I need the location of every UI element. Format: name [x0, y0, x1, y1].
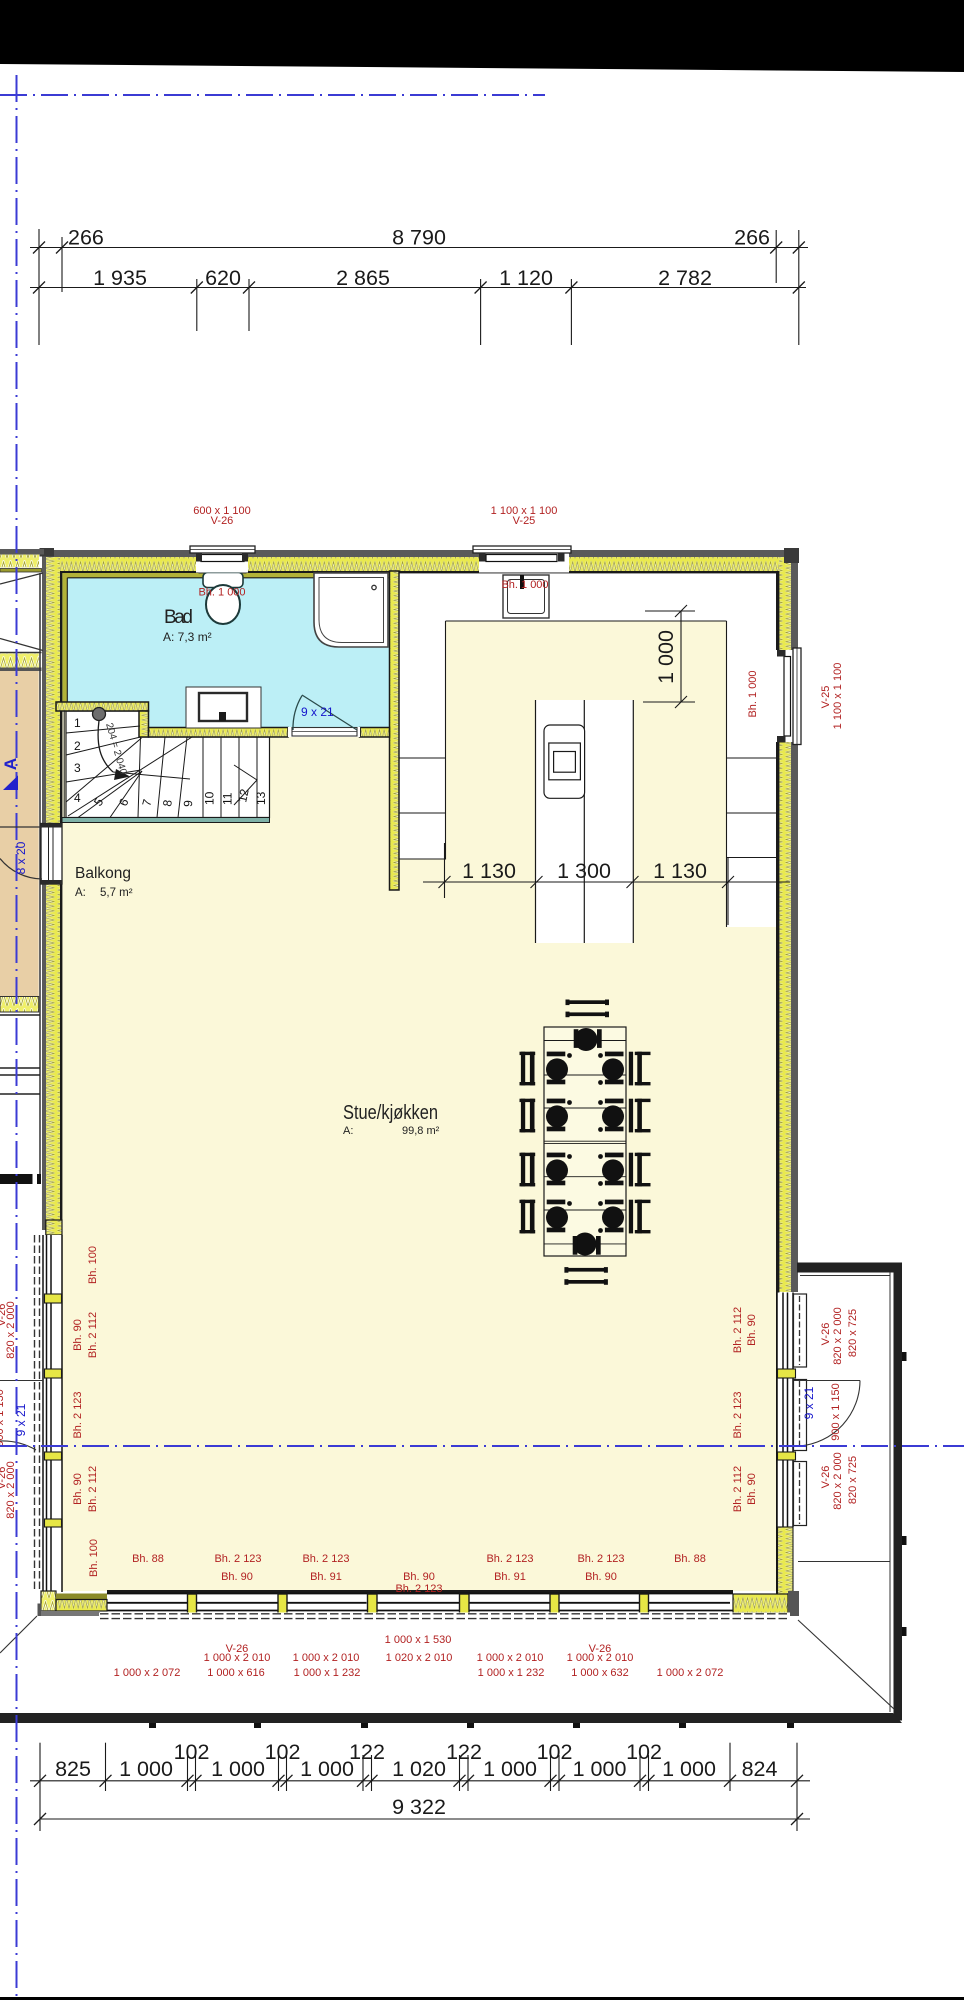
svg-text:V-25: V-25 [513, 515, 536, 527]
svg-text:820 x 725: 820 x 725 [847, 1309, 859, 1357]
svg-text:820 x 2 000: 820 x 2 000 [832, 1307, 844, 1365]
svg-text:1 130: 1 130 [462, 859, 516, 883]
svg-text:9: 9 [181, 800, 195, 807]
svg-text:900 x 1 150: 900 x 1 150 [830, 1383, 842, 1441]
svg-text:9 x 21: 9 x 21 [14, 1403, 28, 1436]
svg-text:1 020: 1 020 [392, 1757, 446, 1781]
svg-text:620: 620 [205, 266, 241, 290]
svg-text:Bh. 88: Bh. 88 [132, 1553, 164, 1565]
svg-text:Bh. 90: Bh. 90 [585, 1571, 617, 1583]
svg-text:102: 102 [265, 1740, 301, 1764]
svg-text:1 000 x 2 010: 1 000 x 2 010 [477, 1652, 544, 1664]
svg-text:11: 11 [221, 792, 235, 805]
svg-text:Bh. 2 123: Bh. 2 123 [72, 1391, 84, 1438]
svg-text:1 000: 1 000 [654, 630, 678, 684]
svg-text:1 000 x 2 010: 1 000 x 2 010 [204, 1652, 271, 1664]
svg-text:Balkong: Balkong [75, 865, 131, 882]
svg-text:266: 266 [734, 226, 770, 250]
svg-text:8 x 20: 8 x 20 [14, 841, 28, 874]
svg-text:1 020 x 2 010: 1 020 x 2 010 [386, 1652, 453, 1664]
svg-text:5,7 m²: 5,7 m² [100, 887, 133, 899]
svg-text:1 000: 1 000 [483, 1757, 537, 1781]
svg-text:824: 824 [742, 1757, 778, 1781]
svg-text:4: 4 [74, 791, 81, 805]
svg-text:102: 102 [537, 1740, 573, 1764]
svg-text:1 000 x 2 010: 1 000 x 2 010 [567, 1652, 634, 1664]
svg-text:1 000 x 1 530: 1 000 x 1 530 [385, 1634, 452, 1646]
svg-text:102: 102 [174, 1740, 210, 1764]
svg-text:1 000 x 2 072: 1 000 x 2 072 [657, 1667, 724, 1679]
svg-text:8 790: 8 790 [392, 226, 446, 250]
svg-text:Bad: Bad [164, 607, 193, 628]
svg-text:1 000 x 2 072: 1 000 x 2 072 [114, 1667, 181, 1679]
svg-text:Bh. 90: Bh. 90 [746, 1314, 758, 1346]
svg-text:1 000 x 1 232: 1 000 x 1 232 [478, 1667, 545, 1679]
svg-text:1 000: 1 000 [300, 1757, 354, 1781]
svg-text:820 x 2 000: 820 x 2 000 [5, 1301, 17, 1359]
svg-text:A: 7,3 m²: A: 7,3 m² [163, 630, 212, 644]
svg-text:820 x 2 000: 820 x 2 000 [5, 1461, 17, 1519]
svg-text:1 935: 1 935 [93, 266, 147, 290]
svg-text:1 000: 1 000 [211, 1757, 265, 1781]
svg-text:A:: A: [75, 887, 86, 899]
svg-text:V-26: V-26 [820, 1323, 832, 1346]
svg-text:1 130: 1 130 [653, 859, 707, 883]
svg-text:Bh. 2 112: Bh. 2 112 [732, 1307, 744, 1353]
svg-text:Bh. 2 123: Bh. 2 123 [395, 1583, 442, 1595]
svg-text:Bh. 88: Bh. 88 [674, 1553, 706, 1565]
svg-text:Bh. 1 000: Bh. 1 000 [198, 587, 245, 599]
svg-text:266: 266 [68, 226, 104, 250]
svg-text:1 300: 1 300 [557, 859, 611, 883]
svg-text:122: 122 [446, 1740, 482, 1764]
svg-text:2 782: 2 782 [658, 266, 712, 290]
svg-text:1 120: 1 120 [499, 266, 553, 290]
svg-text:9 x 21: 9 x 21 [301, 705, 334, 719]
svg-text:Bh. 90: Bh. 90 [72, 1473, 84, 1505]
svg-text:Bh. 100: Bh. 100 [88, 1539, 100, 1577]
svg-text:1 000: 1 000 [119, 1757, 173, 1781]
svg-text:1 000 x 632: 1 000 x 632 [571, 1667, 629, 1679]
svg-text:900 x 1 150: 900 x 1 150 [0, 1389, 6, 1447]
svg-text:V-26: V-26 [820, 1466, 832, 1489]
svg-text:1: 1 [74, 716, 81, 730]
svg-text:2 865: 2 865 [336, 266, 390, 290]
svg-text:Stue/kjøkken: Stue/kjøkken [343, 1102, 438, 1124]
svg-text:Bh. 90: Bh. 90 [746, 1473, 758, 1505]
svg-text:1 000: 1 000 [573, 1757, 627, 1781]
svg-text:V-26: V-26 [211, 515, 234, 527]
svg-text:Bh. 2 123: Bh. 2 123 [486, 1553, 533, 1565]
svg-text:Bh. 2 112: Bh. 2 112 [87, 1312, 99, 1358]
svg-text:10: 10 [203, 791, 217, 805]
svg-text:Bh. 91: Bh. 91 [494, 1571, 526, 1583]
svg-text:1 000 x 2 010: 1 000 x 2 010 [293, 1652, 360, 1664]
svg-text:1 000: 1 000 [662, 1757, 716, 1781]
svg-text:820 x 725: 820 x 725 [847, 1456, 859, 1504]
svg-text:Bh. 2 123: Bh. 2 123 [577, 1553, 624, 1565]
svg-text:1 000 x 1 232: 1 000 x 1 232 [294, 1667, 361, 1679]
svg-text:825: 825 [55, 1757, 91, 1781]
svg-text:Bh. 1 000: Bh. 1 000 [747, 670, 759, 717]
svg-text:A:: A: [343, 1125, 353, 1137]
svg-text:122: 122 [349, 1740, 385, 1764]
svg-text:Bh. 2 112: Bh. 2 112 [87, 1466, 99, 1512]
svg-text:Bh. 100: Bh. 100 [87, 1246, 99, 1284]
svg-text:Bh. 1 000: Bh. 1 000 [501, 579, 548, 591]
svg-text:1 100 x 1 100: 1 100 x 1 100 [832, 663, 844, 730]
svg-text:820 x 2 000: 820 x 2 000 [832, 1452, 844, 1510]
svg-text:9 x 21: 9 x 21 [802, 1386, 816, 1419]
svg-text:Bh. 2 123: Bh. 2 123 [732, 1391, 744, 1438]
svg-text:A: A [1, 758, 20, 770]
svg-text:Bh. 2 123: Bh. 2 123 [214, 1553, 261, 1565]
svg-text:9 322: 9 322 [392, 1795, 446, 1819]
svg-text:Bh. 2 123: Bh. 2 123 [302, 1553, 349, 1565]
svg-text:1 000 x 616: 1 000 x 616 [207, 1667, 265, 1679]
svg-text:13: 13 [254, 791, 268, 805]
svg-text:99,8 m²: 99,8 m² [402, 1125, 440, 1137]
svg-text:Bh. 90: Bh. 90 [221, 1571, 253, 1583]
svg-text:3: 3 [74, 761, 81, 775]
svg-text:Bh. 90: Bh. 90 [72, 1319, 84, 1351]
svg-text:Bh. 90: Bh. 90 [403, 1571, 435, 1583]
svg-text:2: 2 [74, 739, 81, 753]
svg-text:Bh. 2 112: Bh. 2 112 [732, 1466, 744, 1512]
svg-text:V-25: V-25 [820, 686, 832, 709]
svg-text:102: 102 [626, 1740, 662, 1764]
svg-text:Bh. 91: Bh. 91 [310, 1571, 342, 1583]
